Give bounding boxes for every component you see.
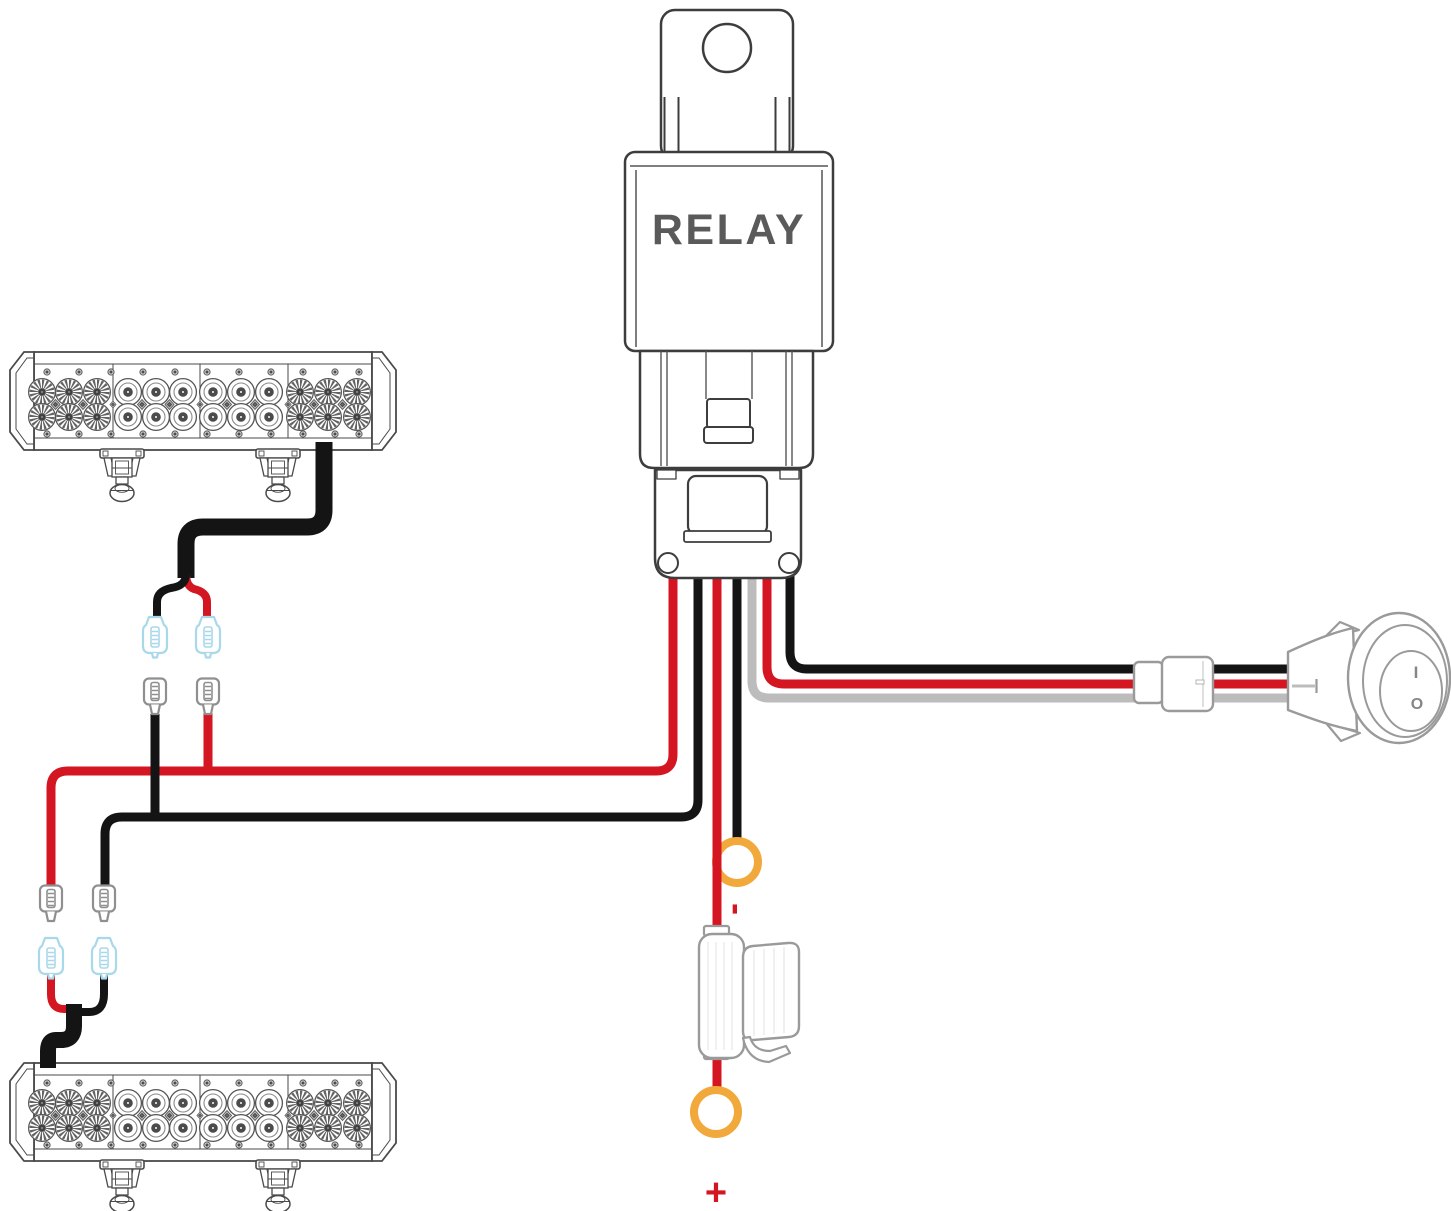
switch-rocker-face	[1380, 651, 1442, 731]
female-connector-top-red	[196, 617, 220, 658]
switch-off-mark: O	[1411, 696, 1423, 713]
led-light-bar-top	[10, 352, 396, 502]
wire-black-switch	[790, 574, 1292, 669]
rocker-switch: I O	[1288, 613, 1450, 743]
male-connector-bottom-black	[93, 886, 115, 922]
switch-inline-connector	[1134, 657, 1213, 711]
male-connector-top-black	[144, 679, 166, 715]
socket-latch	[688, 476, 767, 534]
fuse-body	[699, 934, 744, 1058]
relay-latch-lower	[704, 427, 753, 443]
ring-terminal-negative	[716, 841, 758, 883]
wire-red-bottom-bar-pigtail	[51, 972, 80, 1009]
male-connector-bottom-red	[40, 886, 62, 922]
bottom-bar-cable	[48, 1004, 74, 1068]
led-light-bar-bottom	[10, 1063, 396, 1211]
female-connector-top-black	[143, 617, 167, 658]
relay-assembly: RELAY	[625, 10, 833, 578]
fuse-latch-hook	[743, 1037, 790, 1062]
switch-housing-cone	[1288, 628, 1357, 731]
socket-flange	[684, 531, 771, 542]
top-bar-cable	[186, 442, 324, 578]
relay-label: RELAY	[652, 206, 806, 254]
fuse-holder	[699, 926, 799, 1062]
male-connector-top-red	[197, 679, 219, 715]
negative-label: -	[711, 903, 752, 915]
socket-boss-right	[779, 553, 799, 573]
fuse-cover	[743, 943, 799, 1040]
female-connector-bottom-black	[92, 938, 116, 979]
wiring-diagram: - + I O	[0, 0, 1451, 1211]
positive-label: +	[705, 1172, 727, 1211]
wire-red-left-bars	[51, 574, 673, 888]
wire-black-left-bars	[105, 574, 698, 888]
relay-mounting-hole	[703, 24, 751, 72]
switch-on-mark: I	[1414, 663, 1419, 682]
socket-boss-left	[658, 553, 678, 573]
relay-latch-upper	[707, 399, 750, 428]
female-connector-bottom-red	[39, 938, 63, 979]
ring-terminal-positive	[694, 1090, 738, 1134]
